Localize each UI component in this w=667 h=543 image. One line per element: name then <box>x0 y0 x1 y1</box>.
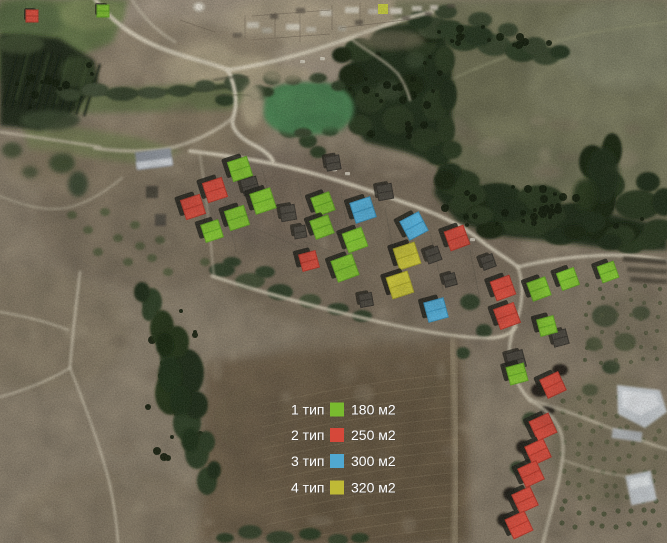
svg-text:2 тип: 2 тип <box>291 427 325 443</box>
svg-text:1 тип: 1 тип <box>291 402 325 418</box>
svg-text:300 м2: 300 м2 <box>351 453 396 469</box>
svg-text:3 тип: 3 тип <box>291 453 325 469</box>
svg-text:320 м2: 320 м2 <box>351 480 396 496</box>
svg-text:250 м2: 250 м2 <box>351 427 396 443</box>
svg-text:4 тип: 4 тип <box>291 480 325 496</box>
svg-text:180 м2: 180 м2 <box>351 402 396 418</box>
